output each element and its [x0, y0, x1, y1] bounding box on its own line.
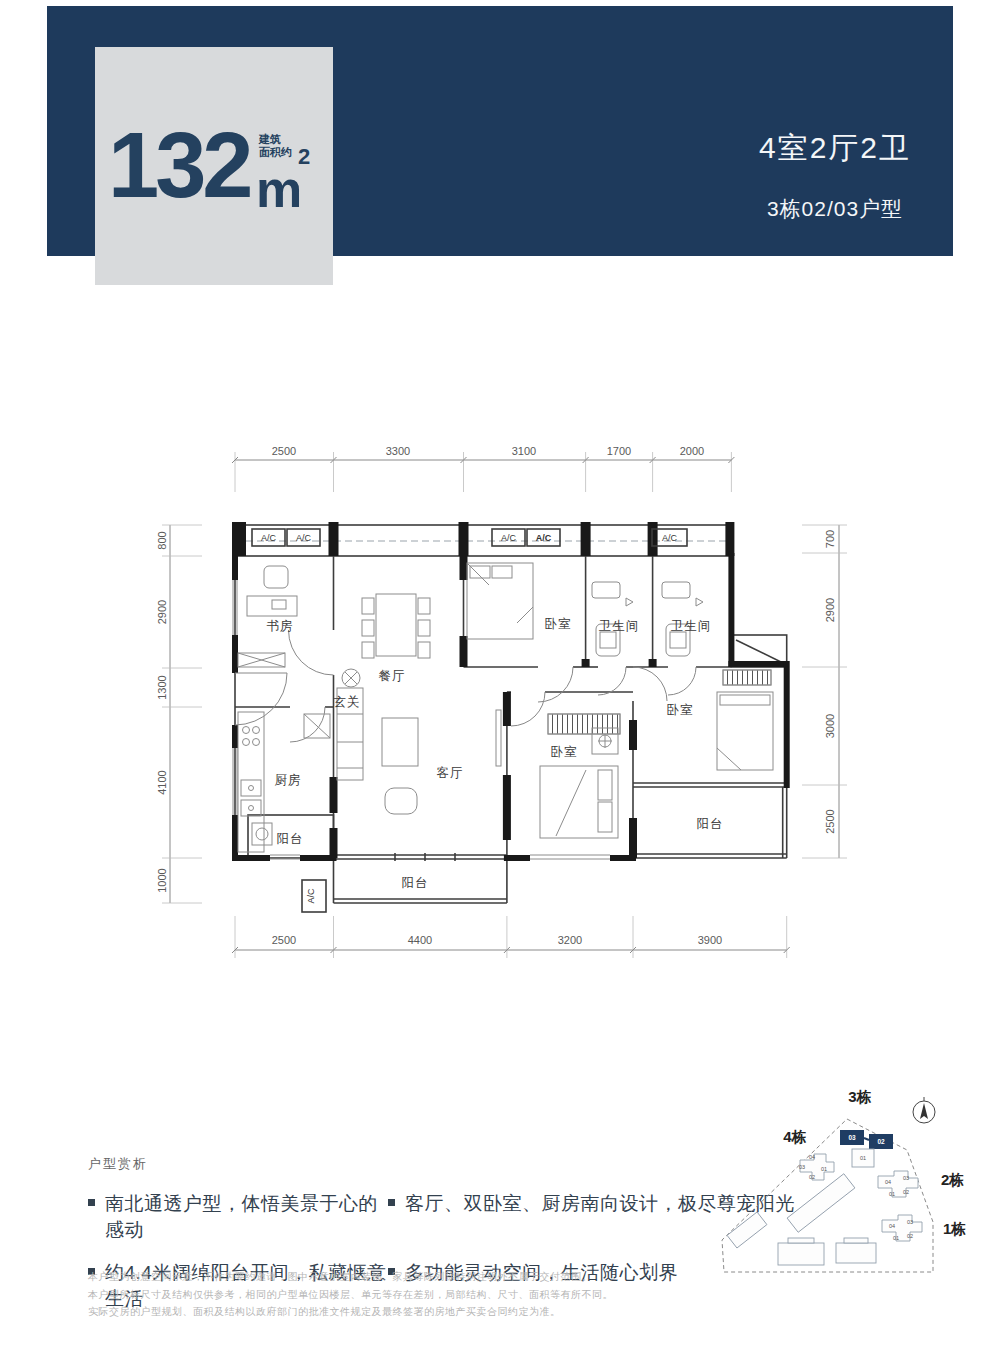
room-label-balcony-west: 阳台 — [277, 832, 304, 846]
dim-top-2: 3300 — [386, 445, 410, 457]
ac-label-5: A/C — [662, 533, 678, 543]
room-label-foyer: 玄关 — [334, 695, 361, 709]
ac-label-2: A/C — [296, 533, 312, 543]
building-label-4: 4栋 — [783, 1128, 806, 1145]
area-unit: m — [256, 163, 302, 215]
flyer-page: 132 建筑 面积约 m 2 4室2厅2卫 3栋02/03户型 — [0, 0, 1000, 1356]
unit-label-03: 03 — [848, 1134, 856, 1141]
unit-label: 03 — [903, 1175, 909, 1181]
unit-label: 04 — [809, 1154, 815, 1160]
wardrobe-south — [548, 714, 620, 734]
dim-bottom-3: 3200 — [558, 934, 582, 946]
room-label-balcony-south: 阳台 — [402, 876, 429, 890]
dim-left-4: 4100 — [156, 770, 168, 794]
dim-right-3: 3000 — [824, 714, 836, 738]
header-right: 4室2厅2卫 3栋02/03户型 — [700, 128, 970, 223]
bullet-square-icon — [388, 1199, 395, 1206]
building-label-1: 1栋 — [943, 1220, 966, 1237]
area-number: 132 — [108, 119, 250, 211]
siteplan: 03 02 01 04 03 01 02 04 03 01 02 04 03 0… — [700, 1072, 985, 1307]
unit-label: 02 — [907, 1233, 913, 1239]
room-label-bath-1: 卫生间 — [599, 619, 640, 633]
disclaimer: 本户型为创意空间示意，不作为要约邀请，图中示意的室内装饰、家具等陈列除特别注明外… — [88, 1268, 688, 1321]
bed-north — [467, 563, 533, 639]
room-label-balcony-east: 阳台 — [697, 817, 724, 831]
bullet-text: 南北通透户型，体悟美景于心的感动 — [105, 1191, 388, 1243]
dim-left-1: 800 — [156, 531, 168, 549]
dim-top-1: 2500 — [272, 445, 296, 457]
room-label-study: 书房 — [267, 619, 294, 633]
unit-label: 04 — [885, 1179, 891, 1185]
bath2-sink — [662, 582, 690, 598]
unit-label: 04 — [889, 1223, 895, 1229]
kitchen-counter — [238, 712, 264, 852]
dim-top-4: 1700 — [607, 445, 631, 457]
unit-label: 02 — [903, 1189, 909, 1195]
unit-label-02: 02 — [877, 1138, 885, 1145]
dim-top-5: 2000 — [680, 445, 704, 457]
dim-left-3: 1300 — [156, 675, 168, 699]
room-label-bedroom-south: 卧室 — [551, 745, 578, 759]
layout-summary: 4室2厅2卫 — [700, 128, 970, 169]
dimensions-top: 2500 3300 3100 1700 2000 — [232, 445, 734, 492]
compass-icon — [913, 1097, 935, 1123]
dimensions-bottom: 2500 4400 3200 3900 — [232, 916, 790, 958]
dim-bottom-4: 3900 — [698, 934, 722, 946]
coffee-table — [382, 718, 418, 766]
dining-table — [376, 594, 416, 656]
dimensions-left: 800 2900 1300 4100 1000 — [156, 525, 202, 903]
building-label-2: 2栋 — [941, 1171, 964, 1188]
area-card: 132 建筑 面积约 m 2 — [95, 47, 333, 285]
dim-bottom-1: 2500 — [272, 934, 296, 946]
bath1-sink — [592, 582, 620, 598]
unit-label: 03 — [907, 1219, 913, 1225]
unit-label: 03 — [799, 1164, 805, 1170]
room-label-living: 客厅 — [437, 766, 464, 780]
study-chair — [264, 566, 288, 588]
bullet-item: 南北通透户型，体悟美景于心的感动 — [88, 1191, 388, 1243]
siteplan-svg: 03 02 01 04 03 01 02 04 03 01 02 04 03 0… — [700, 1072, 985, 1307]
dim-right-4: 2500 — [824, 809, 836, 833]
dim-left-2: 2900 — [156, 600, 168, 624]
disclaimer-line: 本户型为创意空间示意，不作为要约邀请，图中示意的室内装饰、家具等陈列除特别注明外… — [88, 1268, 688, 1286]
unit-label: 01 — [893, 1235, 899, 1241]
dim-right-2: 2900 — [824, 598, 836, 622]
area-note: 建筑 面积约 — [259, 133, 292, 159]
wardrobe-east — [723, 670, 771, 685]
ac-label-6: A/C — [306, 888, 316, 904]
room-label-kitchen: 厨房 — [275, 773, 302, 787]
room-label-dining: 餐厅 — [379, 669, 406, 683]
dim-right-1: 700 — [824, 530, 836, 548]
unit-label: 01 — [889, 1191, 895, 1197]
room-label-bedroom-east: 卧室 — [667, 703, 694, 717]
area-note-line2: 面积约 — [259, 146, 292, 159]
dim-left-5: 1000 — [156, 868, 168, 892]
unit-label-01: 01 — [860, 1155, 866, 1161]
disclaimer-line: 实际交房的户型规划、面积及结构以政府部门的批准文件规定及最终签署的房地产买卖合同… — [88, 1303, 688, 1321]
armchair — [385, 788, 417, 814]
ac-label-4: A/C — [536, 533, 552, 543]
ac-label-1: A/C — [261, 533, 277, 543]
ac-label-3: A/C — [501, 533, 517, 543]
room-label-bath-2: 卫生间 — [671, 619, 712, 633]
unit-label: 02 — [809, 1174, 815, 1180]
bed-east — [717, 692, 773, 770]
unit-label: 01 — [821, 1166, 827, 1172]
disclaimer-line: 本户型所标尺寸及结构仅供参考，相同的户型单位因楼层、单元等存在差别，局部结构、尺… — [88, 1286, 688, 1304]
analysis-title: 户型赏析 — [88, 1155, 795, 1173]
room-label-bedroom-north: 卧室 — [545, 617, 572, 631]
unit-label: 3栋02/03户型 — [700, 195, 970, 223]
dimensions-right: 700 2900 3000 2500 — [802, 525, 847, 858]
floorplan: 2500 3300 3100 1700 2000 2500 4400 3200 … — [140, 430, 860, 975]
area-exponent: 2 — [298, 144, 310, 170]
area-note-line1: 建筑 — [259, 133, 292, 146]
bullet-square-icon — [88, 1199, 95, 1206]
tv — [496, 710, 501, 766]
building-label-3: 3栋 — [848, 1088, 871, 1105]
dim-top-3: 3100 — [512, 445, 536, 457]
walls — [232, 522, 790, 903]
floorplan-svg: 2500 3300 3100 1700 2000 2500 4400 3200 … — [140, 430, 860, 975]
dim-bottom-2: 4400 — [408, 934, 432, 946]
site-buildings — [727, 1130, 922, 1265]
